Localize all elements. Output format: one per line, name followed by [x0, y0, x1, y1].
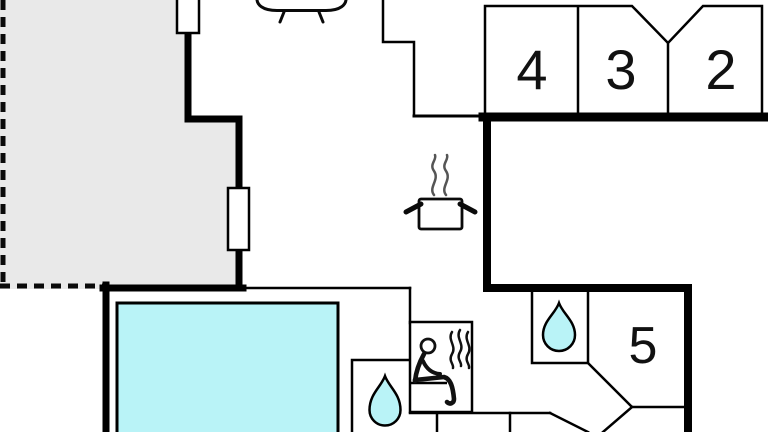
room-4-label: 4: [516, 38, 547, 101]
sofa-icon: [257, 0, 346, 22]
room-5-label: 5: [629, 317, 658, 375]
sauna-room: [410, 322, 472, 412]
water-drop-icon: [370, 376, 401, 426]
wall-kitchen-right: [487, 121, 688, 288]
room-3-label: 3: [605, 38, 636, 101]
wall-living-right: [383, 0, 414, 116]
water-drop-icon: [543, 303, 575, 351]
stove-icon: [406, 155, 475, 229]
room-2-label: 2: [705, 38, 736, 101]
window-living-room: [177, 0, 199, 33]
steam-icon: [432, 155, 447, 195]
floor-plan: 4 3 2 5: [0, 0, 768, 432]
window-kitchen: [228, 188, 249, 250]
pool-area: [117, 303, 338, 432]
wall-hall-diagonal-left: [550, 413, 588, 432]
wall-hall-diagonal-right: [603, 407, 632, 432]
terrace-area: [0, 0, 239, 289]
